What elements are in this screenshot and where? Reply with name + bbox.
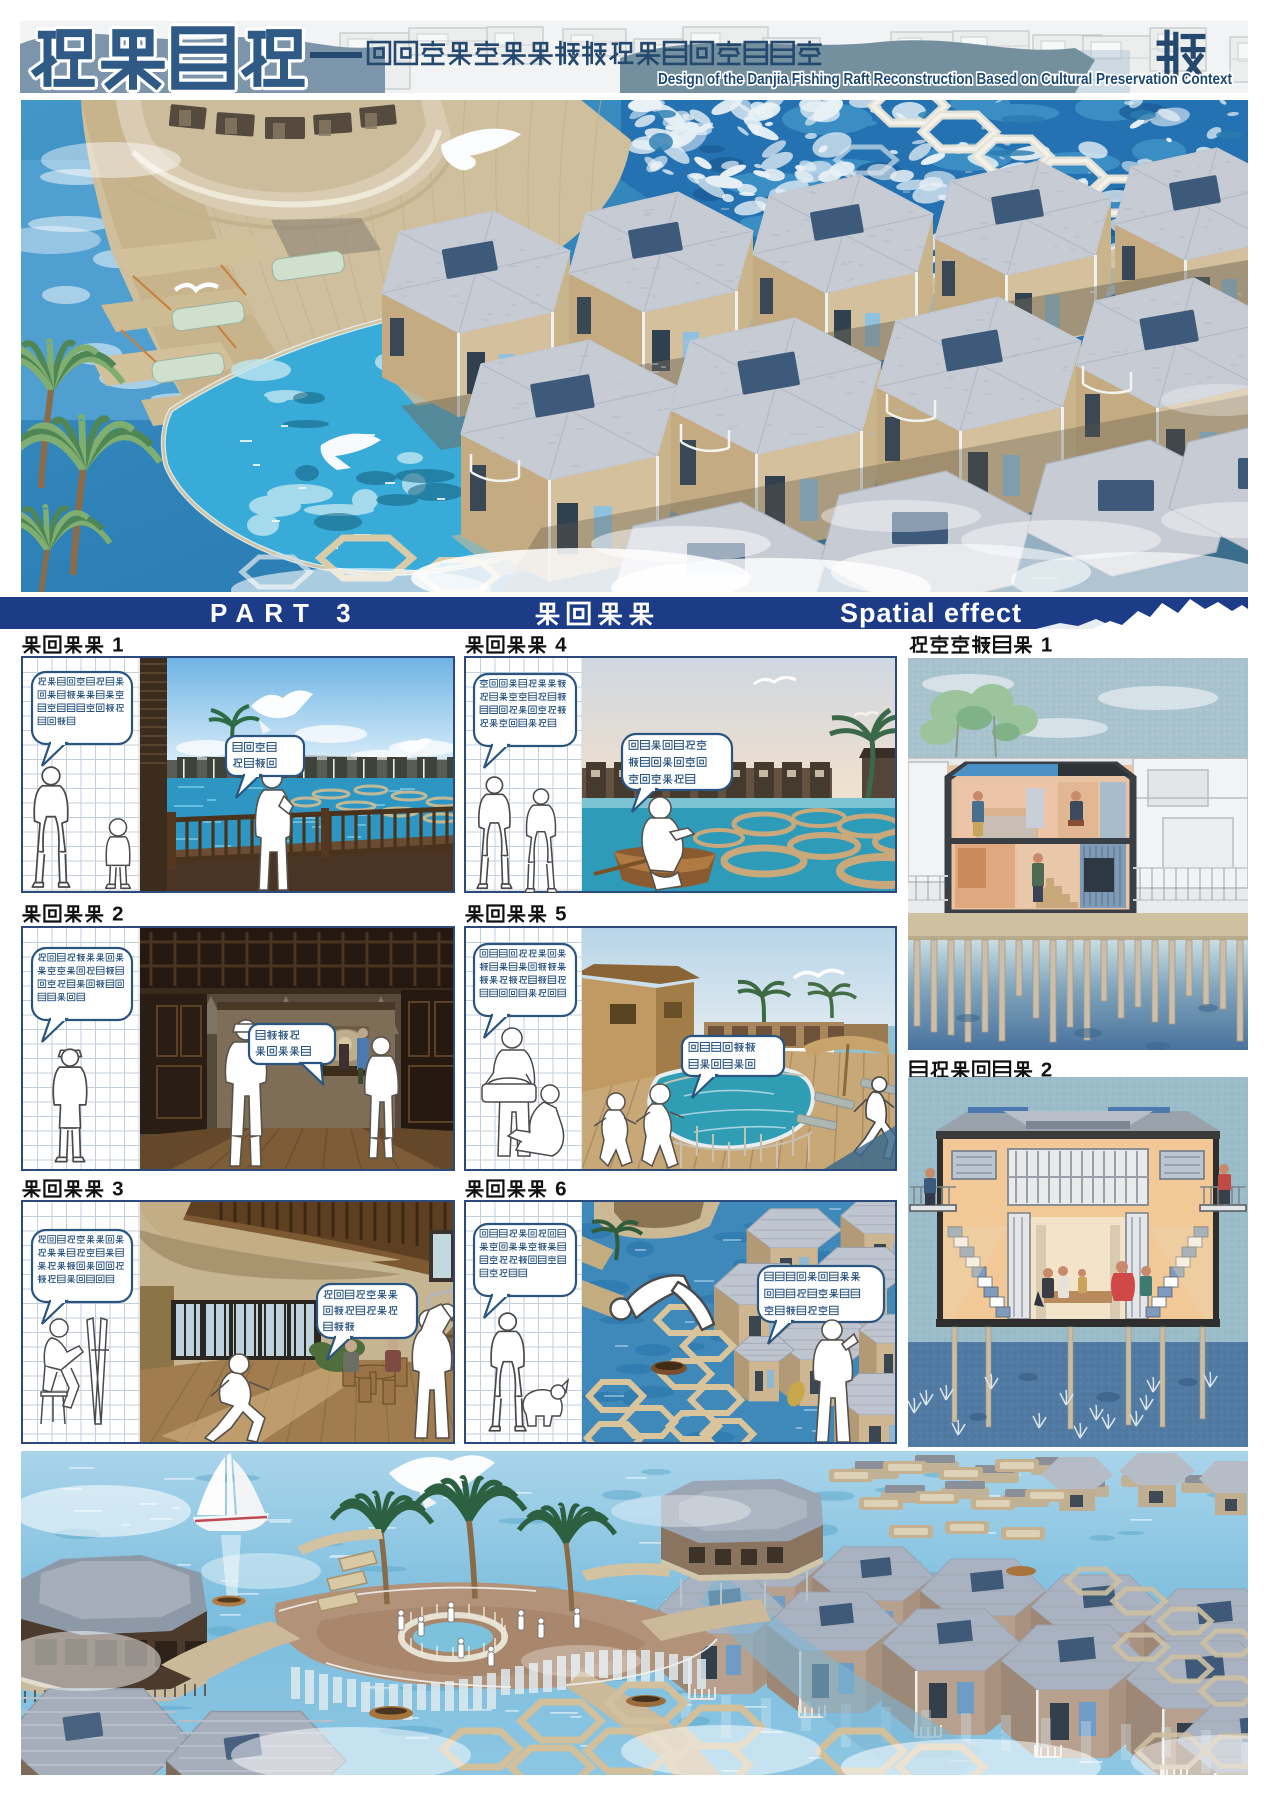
svg-text:3: 3 (112, 1178, 123, 1200)
svg-text:PART 3: PART 3 (210, 598, 361, 628)
svg-text:Design of the Danjia Fishing R: Design of the Danjia Fishing Raft Recons… (658, 71, 1233, 88)
svg-text:4: 4 (555, 634, 567, 656)
svg-text:1: 1 (112, 634, 123, 656)
svg-text:6: 6 (555, 1178, 566, 1200)
svg-text:5: 5 (555, 903, 566, 925)
svg-text:2: 2 (112, 903, 123, 925)
svg-text:Spatial effect: Spatial effect (840, 598, 1022, 628)
svg-text:1: 1 (1041, 634, 1052, 656)
